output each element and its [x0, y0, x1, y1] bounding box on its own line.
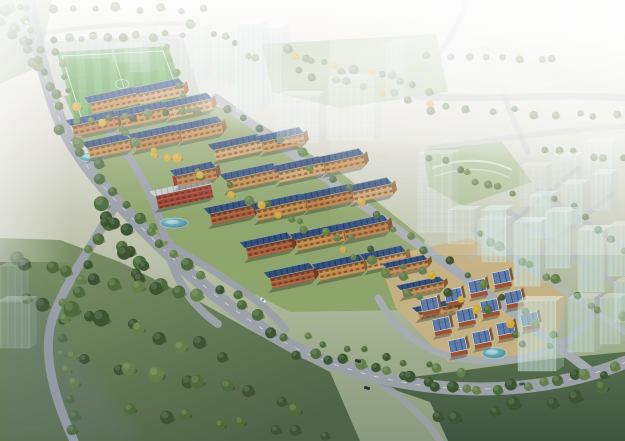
tree-highlight [216, 286, 221, 291]
tree-highlight [292, 351, 297, 356]
tree-highlight [85, 246, 89, 250]
tree-highlight [65, 302, 73, 310]
tree-highlight [611, 362, 616, 367]
tree-highlight [216, 420, 221, 425]
clubhouse-pool-highlight [165, 220, 179, 225]
tree-highlight [571, 370, 576, 375]
tree-highlight [506, 379, 512, 385]
tree-highlight [297, 219, 300, 222]
tree-highlight [405, 372, 411, 378]
tree-highlight [480, 280, 484, 284]
tree-highlight [597, 382, 603, 388]
tree-highlight [253, 310, 259, 316]
tree-highlight [351, 255, 354, 258]
tree-highlight [182, 259, 188, 265]
tree-highlight [383, 353, 387, 357]
tree-highlight [48, 262, 54, 268]
tree-highlight [339, 354, 344, 359]
tree-highlight [74, 287, 80, 293]
tree-highlight [400, 360, 403, 363]
tree-highlight [494, 386, 499, 391]
ghost-top-face [518, 296, 564, 301]
tree-highlight [401, 264, 404, 267]
tree-highlight [417, 294, 420, 297]
tree-highlight [223, 381, 229, 387]
tree-highlight [59, 299, 63, 303]
tree-highlight [151, 283, 158, 290]
tree-highlight [236, 417, 241, 422]
tree-highlight [118, 247, 125, 254]
tree-highlight [300, 226, 304, 230]
tree-highlight [77, 276, 82, 281]
tree-highlight [197, 271, 201, 276]
tree-highlight [170, 251, 174, 255]
tree-highlight [191, 376, 198, 383]
villa-pond-highlight [486, 350, 498, 355]
roundabout-island [164, 241, 168, 245]
tree-highlight [278, 397, 283, 402]
tree-highlight [175, 342, 181, 348]
tree-highlight [362, 346, 365, 349]
tree-highlight [601, 372, 605, 376]
tree-highlight [400, 273, 404, 277]
tree-highlight [115, 366, 120, 371]
tree-highlight [449, 412, 455, 418]
tree-highlight [123, 362, 130, 369]
aerial-masterplan-rendering [0, 0, 625, 441]
tree-highlight [368, 256, 373, 261]
car-windshield [521, 383, 524, 386]
tree-highlight [272, 426, 277, 431]
tree-highlight [89, 274, 95, 280]
tree-highlight [404, 289, 408, 293]
tree-highlight [156, 240, 160, 244]
tree-highlight [491, 407, 496, 412]
tree-highlight [135, 274, 141, 280]
tree-highlight [150, 368, 158, 376]
ghost-side-face [556, 296, 564, 371]
ghost-tower [568, 293, 602, 352]
tree-highlight [94, 234, 100, 240]
tree-highlight [150, 224, 154, 228]
tree-highlight [133, 323, 139, 329]
tree-highlight [161, 412, 168, 419]
ghost-side-face [620, 293, 625, 344]
tree-highlight [427, 362, 430, 365]
tree-highlight [243, 386, 249, 392]
tree-highlight [540, 378, 545, 383]
tree-highlight [61, 266, 67, 272]
tree-highlight [322, 432, 326, 436]
tree-highlight [312, 349, 317, 354]
tree-highlight [458, 296, 461, 299]
tree-highlight [457, 368, 462, 373]
tree-highlight [154, 333, 161, 340]
tree-highlight [320, 342, 323, 345]
tree-highlight [133, 281, 139, 287]
tree-highlight [345, 346, 348, 349]
tree-highlight [485, 306, 489, 310]
tree-highlight [372, 364, 377, 369]
tree-highlight [101, 218, 106, 223]
tree-highlight [382, 270, 386, 274]
tree-highlight [289, 404, 296, 411]
tree-highlight [85, 312, 90, 317]
tree-highlight [291, 426, 296, 431]
tree-highlight [431, 383, 436, 388]
ghost-tower [600, 293, 625, 344]
ghost-curtainwall-lines [568, 298, 594, 352]
tree-highlight [548, 398, 554, 404]
tree-highlight [465, 273, 468, 276]
tree-highlight [448, 382, 454, 388]
tree-highlight [280, 334, 284, 338]
tree-highlight [191, 290, 198, 297]
tree-highlight [122, 224, 128, 230]
tree-highlight [425, 378, 430, 383]
ghost-tower [518, 296, 564, 371]
ghost-curtainwall-lines [518, 301, 556, 371]
tree-highlight [428, 272, 432, 276]
tree-highlight [266, 328, 272, 334]
tree-highlight [84, 261, 89, 266]
tree-highlight [570, 391, 577, 398]
tree-highlight [580, 370, 586, 376]
tree-highlight [140, 261, 145, 266]
tree-highlight [434, 412, 439, 417]
tree-highlight [125, 404, 131, 410]
tree-highlight [552, 275, 557, 280]
tree-highlight [148, 228, 152, 232]
tree-highlight [433, 364, 438, 369]
tree-highlight [305, 333, 309, 337]
tree-highlight [289, 217, 292, 220]
tree-highlight [553, 376, 559, 382]
tree-highlight [183, 376, 189, 382]
tree-highlight [444, 289, 448, 293]
tree-highlight [473, 387, 477, 391]
tree-highlight [94, 311, 102, 319]
tree-highlight [132, 269, 137, 274]
tree-highlight [174, 287, 180, 293]
tree-highlight [129, 319, 134, 324]
tree-highlight [383, 367, 387, 371]
tree-highlight [525, 383, 529, 387]
tree-highlight [508, 398, 515, 405]
tree-highlight [218, 353, 223, 358]
tree-highlight [109, 279, 116, 286]
tree-highlight [324, 356, 329, 361]
tree-highlight [419, 267, 423, 271]
tree-highlight [499, 294, 502, 297]
tree-highlight [61, 314, 66, 319]
tree-highlight [194, 337, 201, 344]
tree-highlight [323, 228, 327, 232]
masterplan-scene [0, 0, 625, 441]
haze-overlay [0, 0, 72, 262]
ghost-curtainwall-lines [600, 298, 620, 344]
tree-highlight [181, 409, 187, 415]
tree-highlight [446, 257, 450, 261]
tree-highlight [507, 320, 511, 324]
tree-highlight [463, 385, 467, 389]
tree-highlight [234, 291, 239, 296]
tree-highlight [513, 331, 517, 335]
tree-highlight [473, 306, 477, 310]
tree-highlight [238, 301, 243, 306]
